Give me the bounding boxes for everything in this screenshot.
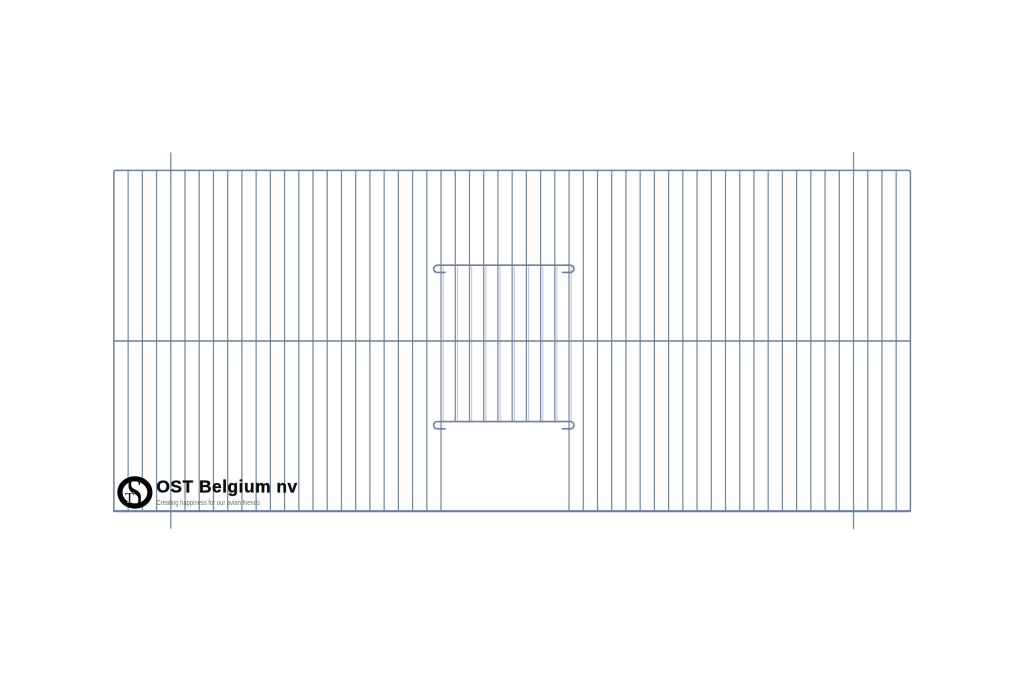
svg-text:OST Belgium nv: OST Belgium nv	[156, 476, 297, 496]
svg-text:Creating happiness for our avi: Creating happiness for our avian friends	[157, 499, 261, 507]
svg-text:T: T	[125, 491, 134, 507]
